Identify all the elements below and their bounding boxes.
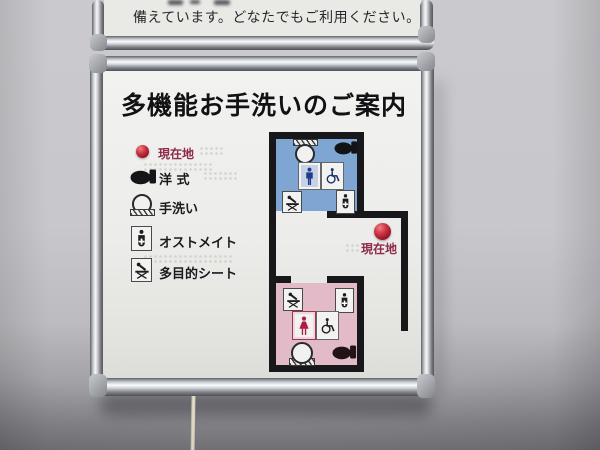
partially-cropped-text [190, 0, 200, 4]
braille-dots [199, 146, 225, 156]
upper-sign-frame-bottom [91, 36, 434, 50]
ostomate-icon [335, 288, 354, 313]
main-sign-corner-cap [89, 374, 107, 397]
man-icon [299, 163, 320, 189]
woman-icon [293, 312, 315, 339]
main-sign-frame-right [421, 58, 434, 394]
braille-dots [203, 171, 239, 180]
upper-sign-corner-cap [90, 34, 107, 51]
photo-of-restroom-guide-sign: 備えています。どなたでもご利用ください。 多機能お手洗いのご案内 現在地 洋 式 [0, 0, 600, 450]
main-sign-face: 多機能お手洗いのご案内 現在地 洋 式 手洗い [103, 68, 421, 380]
map-wall-upper-right [357, 132, 364, 218]
map-current-location-label: 現在地 [361, 240, 397, 257]
wheelchair-icon [322, 163, 343, 189]
sign-side-shadow [433, 80, 443, 396]
main-sign-frame-bottom [90, 378, 434, 396]
hand-wash-icon [295, 144, 315, 164]
map-wall-corridor-right [401, 211, 408, 331]
map-wall-lower-top-left [269, 276, 291, 283]
braille-dots [143, 254, 233, 263]
partially-cropped-text [168, 0, 183, 5]
current-location-dot [374, 223, 391, 240]
map-wall-top [269, 132, 364, 139]
map-wall-bottom [269, 365, 364, 372]
main-sign: 多機能お手洗いのご案内 現在地 洋 式 手洗い [90, 54, 434, 398]
upper-sign-corner-cap [418, 26, 435, 43]
legend-current-location-label: 現在地 [158, 145, 194, 162]
map-wall-left [269, 132, 276, 372]
current-location-dot [136, 145, 149, 158]
multipurpose-seat-icon [283, 288, 303, 311]
hanging-cable [191, 396, 196, 450]
multipurpose-seat-icon [282, 191, 302, 213]
legend-western-toilet-label: 洋 式 [159, 169, 190, 188]
multipurpose-seat-icon [131, 258, 152, 282]
western-toilet-icon [130, 168, 157, 185]
sign-title: 多機能お手洗いのご案内 [121, 86, 407, 122]
main-sign-corner-cap [417, 374, 435, 398]
main-sign-frame-top [90, 56, 434, 71]
western-toilet-icon [332, 344, 357, 360]
braille-dots [345, 243, 359, 252]
upper-sign-text: 備えています。どなたでもご利用ください。 [133, 7, 421, 27]
hand-wash-counter [130, 209, 155, 216]
western-toilet-icon [334, 140, 358, 155]
map-wall-lower-right [357, 276, 364, 372]
wheelchair-icon [317, 312, 338, 339]
ostomate-icon [131, 226, 152, 251]
main-sign-frame-left [90, 62, 103, 392]
partially-cropped-text [214, 0, 230, 5]
main-sign-corner-cap [417, 52, 435, 71]
legend-hand-wash-label: 手洗い [159, 198, 198, 217]
legend-ostomate-label: オストメイト [159, 232, 237, 251]
legend-multipurpose-seat-label: 多目的シート [159, 263, 237, 282]
hand-wash-icon [291, 342, 313, 364]
ostomate-icon [336, 190, 355, 214]
main-sign-corner-cap [89, 54, 107, 73]
